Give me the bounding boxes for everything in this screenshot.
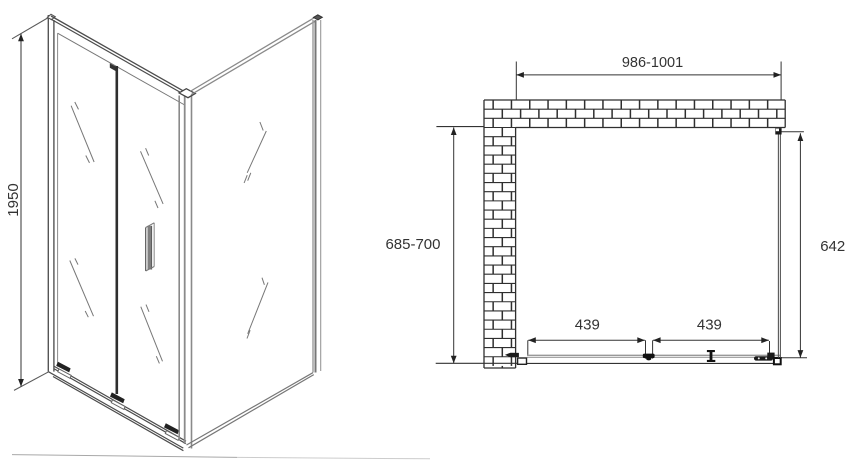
svg-text:439: 439: [575, 316, 600, 333]
svg-text:986-1001: 986-1001: [622, 55, 683, 71]
svg-text:685-700: 685-700: [385, 236, 440, 253]
svg-text:439: 439: [697, 316, 722, 333]
svg-text:1950: 1950: [5, 183, 22, 216]
svg-text:642: 642: [820, 238, 845, 255]
